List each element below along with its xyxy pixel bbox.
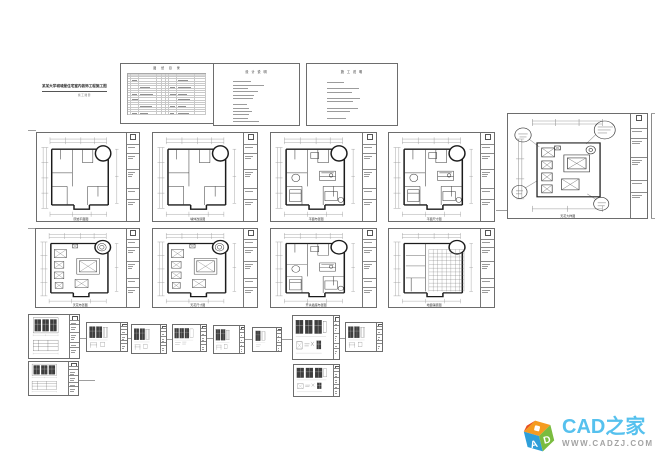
decor (168, 149, 226, 205)
decor (305, 342, 314, 346)
decor (128, 147, 135, 148)
decor (327, 88, 359, 89)
decor (364, 176, 368, 177)
decor (443, 191, 455, 200)
decor (297, 342, 303, 349)
decor (244, 133, 257, 145)
decor (482, 268, 486, 269)
decor (233, 118, 248, 119)
decor (190, 244, 195, 248)
decor (482, 290, 490, 291)
decor (245, 242, 253, 243)
decor (364, 281, 372, 282)
decor (245, 202, 253, 203)
title-block (362, 229, 376, 307)
decor (131, 112, 140, 114)
sheet-title-label: 天花大样图 (508, 214, 628, 218)
decor (128, 158, 134, 159)
decor (240, 347, 244, 353)
title-block (480, 133, 494, 221)
decor (70, 385, 75, 386)
decor (327, 82, 344, 83)
decor (555, 146, 561, 150)
decor (364, 252, 370, 253)
decor (335, 351, 337, 352)
decor (245, 264, 253, 265)
decor (367, 230, 373, 236)
decor (632, 162, 640, 163)
partial-sheet-edge (651, 113, 652, 219)
decor (192, 279, 205, 287)
decor (217, 345, 222, 350)
decor (482, 252, 488, 253)
connector-line (28, 130, 36, 131)
decor (201, 345, 206, 351)
decor (482, 242, 490, 243)
decor (244, 154, 257, 170)
decor (482, 176, 486, 177)
decor (105, 328, 107, 338)
connector-line (80, 338, 86, 339)
decor (33, 341, 58, 352)
decor (75, 279, 88, 287)
decor (632, 141, 642, 142)
decor (33, 353, 58, 355)
decor (631, 139, 647, 158)
sheet-title-label: 平面尺寸图 (389, 217, 479, 221)
decor (562, 179, 580, 190)
decor (631, 193, 647, 218)
decor (364, 290, 372, 291)
decor (363, 200, 376, 221)
decor (245, 252, 251, 253)
decor (349, 343, 355, 348)
decor (636, 115, 642, 121)
sheet-elevation-5[interactable] (213, 325, 245, 354)
decor (482, 147, 490, 148)
decor (128, 290, 135, 291)
decor (128, 202, 135, 203)
sheet-switch-plan[interactable]: 开关插座布置图 (270, 228, 377, 308)
decor (632, 131, 642, 132)
decor (233, 78, 287, 79)
decor (327, 105, 385, 106)
decor (292, 265, 300, 272)
decor (70, 374, 74, 375)
decor (135, 345, 141, 350)
decor (429, 249, 464, 291)
sheet-title-label: 地面铺装图 (389, 303, 479, 307)
decor (70, 325, 79, 333)
ceiling-plan-drawing (37, 230, 124, 305)
decor (335, 336, 337, 337)
decor (197, 260, 214, 271)
decor (33, 391, 57, 392)
cover-title: 某某大学城城堡住宅室内装饰工程施工图 (42, 84, 107, 92)
decor (482, 174, 488, 175)
decor (482, 264, 490, 265)
decor (482, 204, 488, 205)
decor (363, 240, 376, 248)
decor (71, 350, 76, 351)
decor (227, 330, 228, 340)
decor (568, 158, 587, 169)
decor (329, 265, 333, 268)
decor (320, 171, 336, 180)
connector-line (128, 338, 131, 339)
sheet-wall-modify-plan[interactable]: 墙体改造图 (152, 132, 258, 222)
sheet-elevation-3[interactable] (131, 324, 167, 354)
decor (311, 246, 319, 251)
decor (244, 240, 257, 248)
decor (363, 145, 376, 154)
decor (438, 173, 454, 176)
decor (233, 81, 252, 82)
decor (594, 197, 609, 210)
decor (367, 134, 373, 140)
decor (128, 281, 135, 282)
decor (70, 348, 79, 358)
decor (364, 172, 372, 173)
decor (241, 335, 243, 336)
decor (71, 345, 76, 346)
decor (71, 329, 75, 330)
sheet-furniture-dim-plan[interactable]: 平面尺寸图 (388, 132, 495, 222)
decor (130, 134, 136, 140)
decor (33, 341, 58, 352)
title-block (243, 133, 257, 221)
sheet-elevation-6[interactable] (252, 327, 282, 352)
sheet-elevation-4[interactable] (172, 324, 207, 352)
decor (481, 133, 494, 145)
decor (632, 160, 642, 161)
connector-line (496, 210, 507, 211)
decor (519, 134, 528, 137)
decor (233, 88, 248, 89)
decor (245, 204, 251, 205)
decor (278, 340, 279, 341)
title-block (120, 323, 127, 351)
decor (72, 244, 77, 248)
decor (245, 174, 251, 175)
elevation-drawing (346, 323, 374, 350)
decor (128, 204, 134, 205)
decor (364, 242, 372, 243)
sheet-floor-paving-plan[interactable]: 地面铺装图 (388, 228, 495, 308)
title-block (200, 325, 206, 351)
decor (70, 391, 74, 392)
decor (248, 134, 254, 140)
decor (195, 112, 205, 114)
notes-text-lines (327, 78, 385, 119)
decor (311, 152, 319, 158)
decor (244, 248, 257, 262)
title-block (160, 325, 166, 353)
title-block (239, 326, 244, 353)
sheet-ceiling-detail[interactable]: 天花大样图 (507, 113, 648, 219)
decor (363, 229, 376, 240)
elevation-drawing (132, 325, 159, 352)
decor (378, 346, 380, 347)
decor (338, 197, 343, 202)
decor (162, 350, 164, 351)
decor (320, 173, 336, 176)
sheet-elevation-9[interactable] (28, 361, 79, 396)
decor (122, 339, 124, 340)
decor (140, 113, 147, 114)
decor (127, 248, 139, 262)
decor (33, 377, 57, 378)
decor (327, 108, 358, 109)
decor (79, 260, 96, 271)
sheet-elevation-10[interactable] (293, 364, 340, 397)
sheet-elevation-1[interactable] (28, 314, 80, 359)
decor (334, 349, 339, 359)
decor (320, 264, 336, 267)
decor (144, 344, 147, 349)
logo-text-group: CAD之家 WWW.CADZJ.COM (562, 417, 654, 448)
decor (335, 353, 337, 354)
decor (363, 133, 376, 145)
sheet-ceiling-dim-plan[interactable]: 天花尺寸图 (152, 228, 258, 308)
decor (481, 154, 494, 170)
title-block (68, 362, 78, 395)
decor (364, 268, 368, 269)
decor (378, 339, 380, 340)
decor (410, 174, 418, 182)
cadzj-logo[interactable]: A D CAD之家 WWW.CADZJ.COM (520, 417, 654, 455)
logo-title: CAD之家 (562, 417, 654, 438)
decor (244, 200, 257, 221)
decor (245, 266, 251, 267)
decor (327, 111, 350, 112)
decor (162, 339, 164, 340)
decor (482, 156, 490, 157)
decor (127, 288, 139, 307)
decor (128, 156, 135, 157)
connector-line (167, 339, 172, 340)
title-block (376, 323, 382, 351)
decor (482, 250, 490, 251)
decor (327, 95, 385, 96)
decor (161, 346, 166, 353)
decor (334, 378, 339, 385)
index-title: 图 纸 目 录 (121, 66, 214, 70)
elevation-drawing (294, 365, 329, 395)
decor (327, 85, 385, 86)
decor (335, 382, 337, 383)
decor (70, 389, 75, 390)
decor (127, 154, 139, 170)
sheet-ceiling-plan[interactable]: 天花布置图 (35, 228, 140, 308)
decor (172, 272, 182, 279)
decor (278, 336, 279, 337)
decor (127, 189, 139, 200)
decor (170, 113, 174, 114)
decor (244, 189, 257, 200)
decor (127, 240, 139, 248)
sheet-original-plan[interactable]: 原始平面图 (36, 132, 140, 222)
decor (482, 202, 490, 203)
decor (122, 337, 125, 338)
decor (132, 113, 138, 114)
decor (335, 338, 337, 339)
decor (244, 145, 257, 154)
decor (632, 195, 642, 196)
decor (485, 230, 491, 236)
decor (542, 185, 553, 193)
sheet-title-label: 天花布置图 (36, 303, 125, 307)
decor (364, 156, 372, 157)
decor (363, 248, 376, 262)
sheet-index[interactable]: 图 纸 目 录 (120, 63, 215, 124)
decor (377, 344, 382, 351)
sheet-elevation-7[interactable] (292, 315, 340, 360)
decor (225, 345, 228, 349)
decor (325, 281, 337, 289)
decor (162, 334, 164, 335)
decor (190, 329, 193, 338)
connector-line (207, 338, 213, 339)
decor (364, 204, 370, 205)
decor (233, 95, 255, 96)
floor-plan-drawing (390, 230, 478, 305)
connector-line (245, 339, 252, 340)
title-block (69, 315, 79, 358)
sheet-furniture-plan[interactable]: 平面布置图 (270, 132, 377, 222)
ceiling-detail-drawing (509, 115, 626, 215)
decor (71, 339, 74, 340)
decor (589, 148, 593, 151)
sheet-elevation-2[interactable] (86, 322, 128, 352)
connector-line (79, 380, 95, 381)
decor (335, 340, 336, 341)
decor (512, 185, 527, 198)
decor (364, 202, 372, 203)
title-block (243, 229, 257, 307)
decor (263, 332, 265, 341)
decor (598, 203, 606, 206)
decor (292, 174, 300, 182)
decor (178, 113, 189, 114)
decor (233, 85, 265, 86)
decor (202, 347, 204, 348)
decor (233, 108, 249, 109)
decor (278, 350, 279, 351)
decor (542, 148, 555, 157)
decor (202, 338, 204, 339)
decor (98, 243, 107, 250)
decor (363, 262, 376, 279)
decor (324, 322, 327, 333)
decor (631, 114, 647, 129)
partial-sheet-edge (651, 113, 655, 114)
decor (213, 146, 229, 161)
decor (306, 384, 315, 387)
decor (632, 164, 637, 165)
sheet-notes-1[interactable]: 设 计 说 明 (213, 63, 300, 126)
decor (290, 279, 301, 289)
connector-line (340, 338, 345, 339)
sheet-notes-2[interactable]: 施 工 说 明 (306, 63, 398, 126)
sheet-cover[interactable]: 某某大学城城堡住宅室内装饰工程施工图施 工 图 册 (42, 84, 108, 100)
decor (233, 101, 287, 102)
decor (378, 348, 380, 349)
sheet-elevation-8[interactable] (345, 322, 383, 352)
decor (485, 134, 491, 140)
decor (335, 393, 337, 394)
decor (631, 181, 647, 193)
decor (177, 112, 195, 114)
title-block (333, 365, 339, 396)
decor (335, 391, 337, 392)
decor (482, 191, 490, 192)
decor (175, 342, 186, 345)
decor (632, 183, 642, 184)
decor (481, 145, 494, 154)
decor (130, 230, 136, 236)
decor (217, 245, 221, 249)
decor (70, 380, 74, 381)
decor (481, 262, 494, 279)
decor (52, 149, 109, 205)
title-block (362, 133, 376, 221)
decor (449, 146, 465, 161)
decor (226, 330, 229, 340)
decor (334, 326, 339, 334)
decor (245, 268, 249, 269)
decor (215, 243, 224, 250)
decor (482, 172, 490, 173)
decor (361, 328, 365, 338)
decor (262, 332, 265, 341)
decor (335, 328, 337, 329)
decor (542, 173, 553, 181)
decor (241, 351, 242, 352)
decor (127, 133, 139, 145)
decor (363, 154, 376, 170)
title-block (126, 229, 139, 307)
decor (244, 229, 257, 240)
decor (447, 174, 451, 177)
ceiling-plan-drawing (154, 230, 241, 305)
decor (364, 292, 370, 293)
decor (327, 92, 352, 93)
elevation-drawing (29, 362, 67, 394)
furniture-plan-drawing (272, 230, 360, 305)
decor (481, 248, 494, 262)
decor (327, 101, 354, 102)
decor (100, 245, 104, 249)
sheet-title-label: 天花尺寸图 (153, 303, 242, 307)
elevation-drawing (293, 316, 329, 357)
decor (245, 176, 249, 177)
decor (378, 337, 380, 338)
decor (363, 189, 376, 200)
decor (33, 335, 58, 337)
decor (245, 292, 251, 293)
notes-text-lines (233, 78, 287, 122)
decor (359, 342, 363, 347)
elevation-drawing (87, 323, 118, 350)
title-block (480, 229, 494, 307)
sheet-title-label: 平面布置图 (271, 217, 361, 221)
decor (320, 263, 336, 271)
decor (127, 200, 139, 221)
decor (363, 288, 376, 307)
decor (245, 147, 253, 148)
decor (481, 170, 494, 189)
